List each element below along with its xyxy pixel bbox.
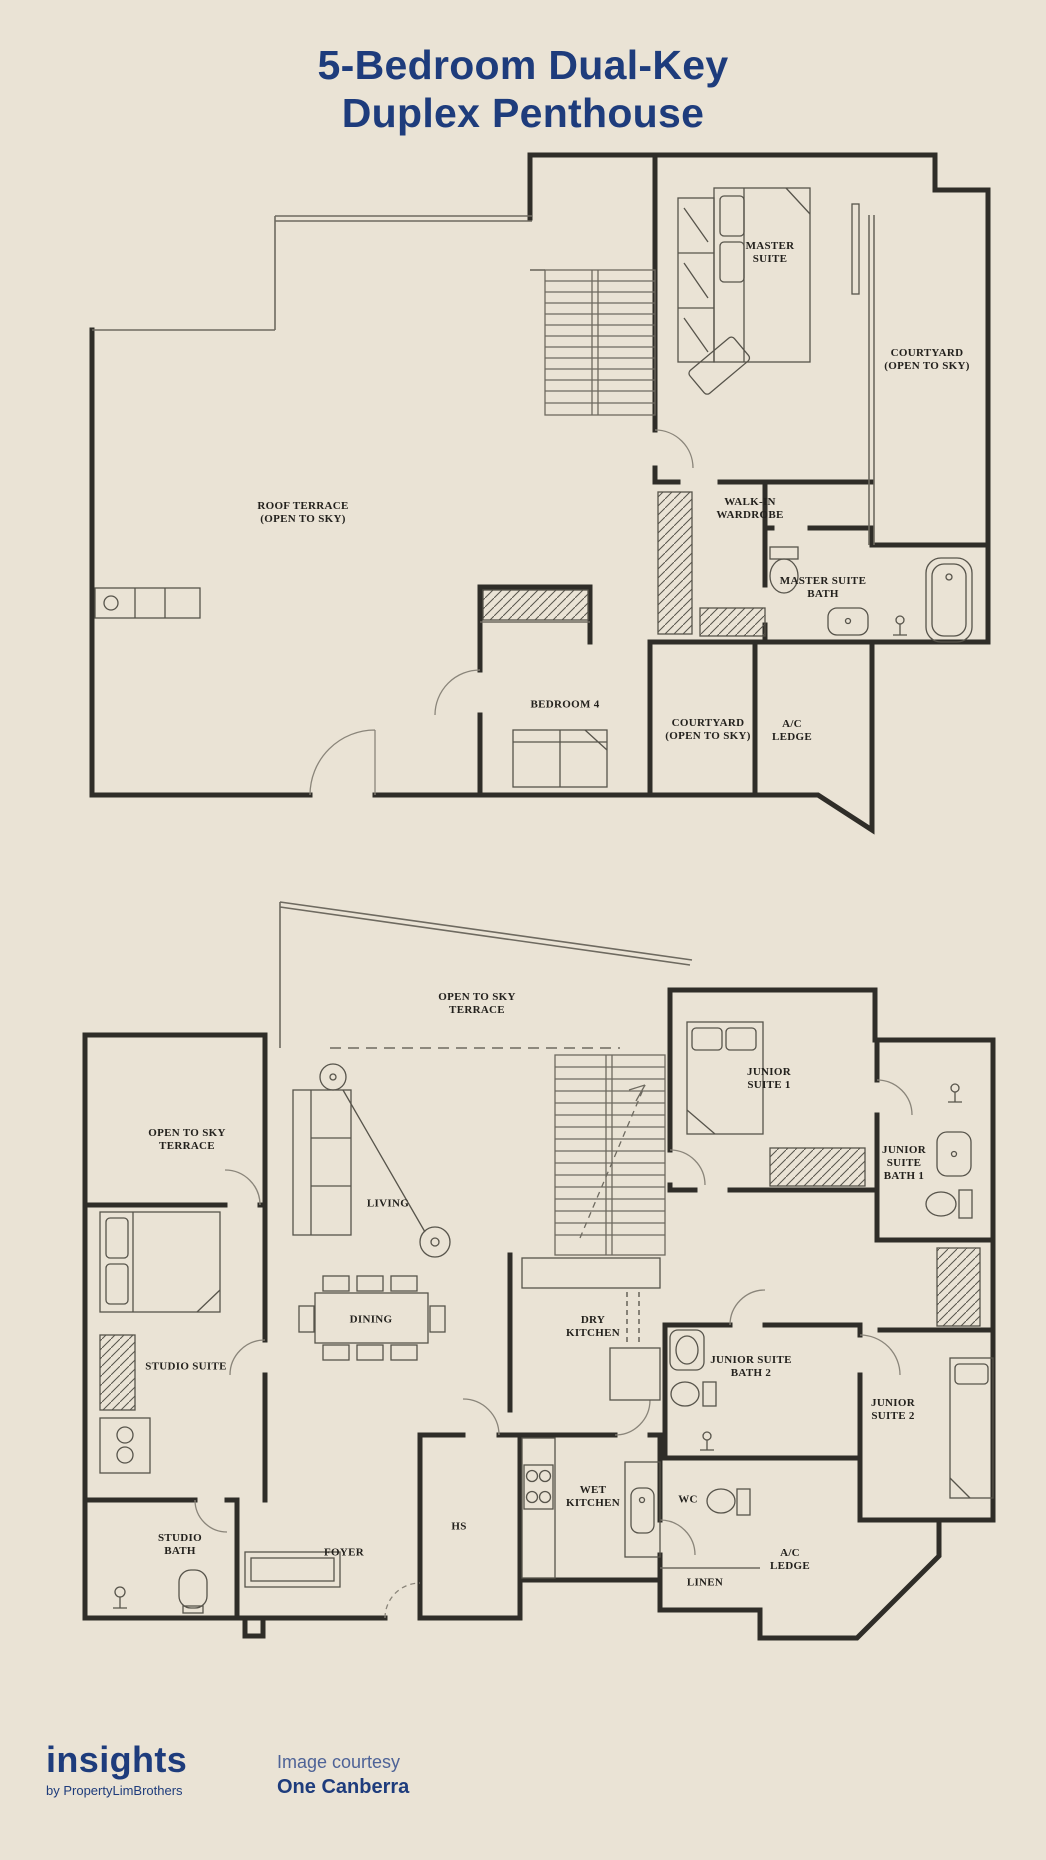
bathtub-icon [926, 558, 972, 642]
bath1-sink-icon [937, 1132, 971, 1176]
tv-console-icon [852, 204, 859, 294]
dry-kitchen-island-icon [610, 1348, 660, 1400]
room-label-courtyard-small: COURTYARD (OPEN TO SKY) [665, 717, 750, 743]
studio-toilet-icon [179, 1570, 207, 1613]
upper-floor-drawing [80, 130, 1010, 850]
brand-name: insights [46, 1742, 187, 1778]
walkin-closet-hatch-icon [658, 492, 692, 634]
room-label-hs: HS [451, 1520, 466, 1533]
walkin-closet-hatch2-icon [700, 608, 765, 636]
bath2-tub-icon [670, 1330, 704, 1370]
brand-logo: insights by PropertyLimBrothers [46, 1742, 187, 1798]
room-label-bedroom-4: BEDROOM 4 [530, 698, 599, 711]
room-label-living: LIVING [367, 1197, 409, 1210]
lower-stairs-icon [555, 1055, 665, 1255]
bath1-shower-icon [948, 1084, 962, 1102]
studio-kitchenette-icon [100, 1418, 150, 1473]
bath2-shower-icon [700, 1432, 714, 1450]
room-label-terrace-top: OPEN TO SKY TERRACE [438, 991, 515, 1017]
sink-icon [828, 608, 868, 635]
junior1-closet-hatch-icon [770, 1148, 865, 1186]
terrace-bench-icon [95, 588, 200, 618]
studio-bed-icon [100, 1212, 220, 1312]
upper-thin-walls [92, 215, 874, 622]
room-label-wet-kitchen: WET KITCHEN [566, 1484, 620, 1510]
bedroom4-bed-icon [513, 730, 607, 787]
junior2-bed-icon [950, 1358, 993, 1498]
bedroom4-closet-hatch-icon [483, 590, 588, 620]
shower-icon [893, 616, 907, 635]
page-title: 5-Bedroom Dual-Key Duplex Penthouse [0, 42, 1046, 138]
dry-kitchen-counter-icon [522, 1258, 660, 1288]
room-label-junior-bath-1: JUNIOR SUITE BATH 1 [882, 1144, 926, 1184]
room-label-courtyard-upper: COURTYARD (OPEN TO SKY) [884, 347, 969, 373]
page-title-line1: 5-Bedroom Dual-Key [0, 42, 1046, 90]
floorplan-page: 5-Bedroom Dual-Key Duplex Penthouse [0, 0, 1046, 1860]
room-label-dining: DINING [350, 1313, 393, 1326]
master-bed-icon [714, 188, 810, 362]
image-credit-label: Image courtesy [277, 1752, 409, 1773]
room-label-roof-terrace: ROOF TERRACE (OPEN TO SKY) [257, 500, 348, 526]
junior2-closet-hatch-icon [937, 1248, 980, 1326]
lower-furniture [100, 1022, 993, 1613]
brand-subtitle: by PropertyLimBrothers [46, 1783, 187, 1798]
sofa-icon [293, 1064, 450, 1257]
wet-kitchen-sink-icon [625, 1462, 660, 1557]
studio-closet-hatch-icon [100, 1335, 135, 1410]
room-label-walkin-wardrobe: WALK-IN WARDROBE [716, 496, 783, 522]
room-label-wc: WC [678, 1493, 698, 1506]
chaise-icon [687, 336, 751, 396]
room-label-ac-ledge-upper: A/C LEDGE [772, 718, 812, 744]
studio-shower-icon [113, 1587, 127, 1608]
room-label-master-suite: MASTER SUITE [746, 240, 795, 266]
image-credit: Image courtesy One Canberra [277, 1752, 409, 1799]
room-label-studio-bath: STUDIO BATH [158, 1532, 202, 1558]
wet-kitchen-hob-icon [522, 1438, 555, 1578]
stairs-icon [545, 270, 655, 415]
room-label-terrace-left: OPEN TO SKY TERRACE [148, 1127, 225, 1153]
bath1-toilet-icon [926, 1190, 972, 1218]
room-label-foyer: FOYER [324, 1546, 364, 1559]
image-credit-source: One Canberra [277, 1776, 409, 1799]
upper-walls [92, 155, 988, 830]
room-label-junior-suite-2: JUNIOR SUITE 2 [871, 1397, 915, 1423]
room-label-junior-suite-1: JUNIOR SUITE 1 [747, 1066, 791, 1092]
wc-toilet-icon [707, 1489, 750, 1515]
room-label-linen: LINEN [687, 1576, 723, 1589]
room-label-master-bath: MASTER SUITE BATH [780, 575, 866, 601]
bath2-toilet-icon [671, 1382, 716, 1406]
master-wardrobe-icon [678, 198, 714, 362]
lower-floor-drawing [75, 880, 1015, 1670]
upper-furniture [95, 188, 972, 787]
lower-walls [85, 990, 993, 1638]
room-label-studio-suite: STUDIO SUITE [145, 1360, 227, 1373]
room-label-ac-ledge-lower: A/C LEDGE [770, 1547, 810, 1573]
lower-floor-plan [75, 880, 1015, 1670]
room-label-junior-bath-2: JUNIOR SUITE BATH 2 [710, 1354, 792, 1380]
upper-floor-plan [80, 130, 1010, 850]
room-label-dry-kitchen: DRY KITCHEN [566, 1314, 620, 1340]
